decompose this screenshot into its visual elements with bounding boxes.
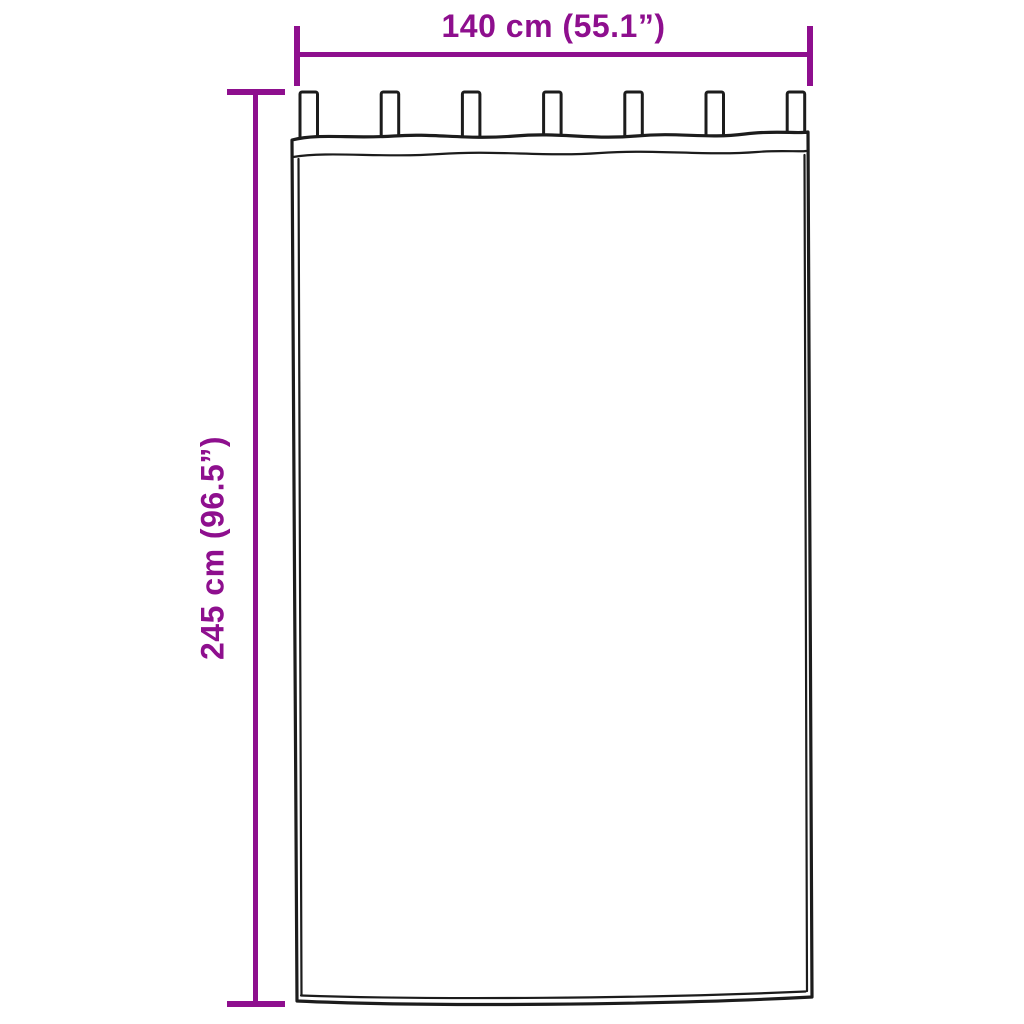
product-dimension-diagram: 140 cm (55.1”) 245 cm (96.5”) xyxy=(0,0,1024,1024)
height-dimension-line xyxy=(227,92,285,1004)
curtain-body xyxy=(292,132,812,1004)
width-dimension-label: 140 cm (55.1”) xyxy=(297,8,810,45)
curtain-diagram xyxy=(0,0,1024,1024)
height-dimension-label: 245 cm (96.5”) xyxy=(195,436,232,660)
